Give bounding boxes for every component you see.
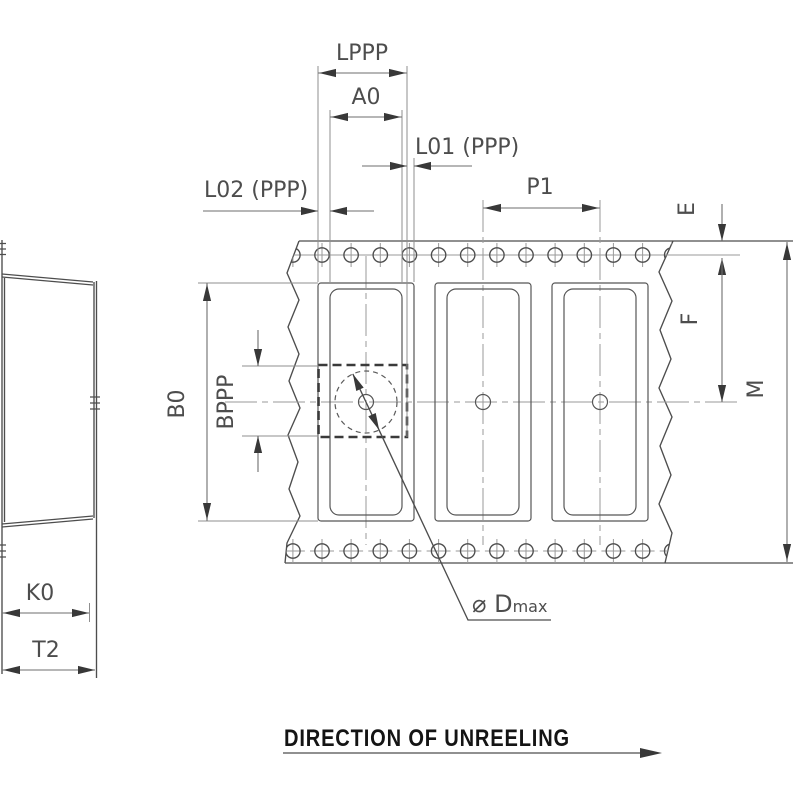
a0-label: A0 xyxy=(351,85,380,110)
k0-label: K0 xyxy=(26,581,54,606)
dimensions: LPPP A0 L01 (PPP) L02 (PPP) P1 B0 BPPP xyxy=(165,41,791,620)
m-label: M xyxy=(744,380,769,399)
dmax-label: ⌀ Dmax xyxy=(472,590,547,618)
b0-label: B0 xyxy=(165,389,190,418)
bottom-flange xyxy=(2,516,93,527)
l02-label: L02 (PPP) xyxy=(204,178,308,203)
footer: DIRECTION OF UNREELING xyxy=(283,725,662,758)
l01-label: L01 (PPP) xyxy=(415,135,519,160)
direction-of-unreeling-label: DIRECTION OF UNREELING xyxy=(284,725,570,752)
f-label: F xyxy=(678,313,703,326)
sprocket-holes-bottom xyxy=(310,539,655,563)
tape-reel-specification-drawing: K0 T2 xyxy=(0,0,800,800)
section-ticks-bottom xyxy=(0,545,6,557)
p1-label: P1 xyxy=(526,175,553,200)
component-outline-dashed xyxy=(319,365,408,437)
t2-label: T2 xyxy=(31,638,59,663)
side-view-pocket-section: K0 T2 xyxy=(0,240,100,678)
section-ticks-middle xyxy=(90,397,100,409)
e-label: E xyxy=(675,202,700,216)
lppp-label: LPPP xyxy=(336,41,388,66)
technical-drawing-canvas: K0 T2 xyxy=(0,0,800,800)
top-flange xyxy=(2,274,93,285)
dmax-leader-line xyxy=(353,374,551,620)
section-ticks-top xyxy=(0,244,6,255)
bppp-label: BPPP xyxy=(214,375,239,430)
extension-lines xyxy=(198,66,414,521)
unreeling-arrow-head xyxy=(640,748,662,758)
tape-top-view xyxy=(225,200,793,563)
